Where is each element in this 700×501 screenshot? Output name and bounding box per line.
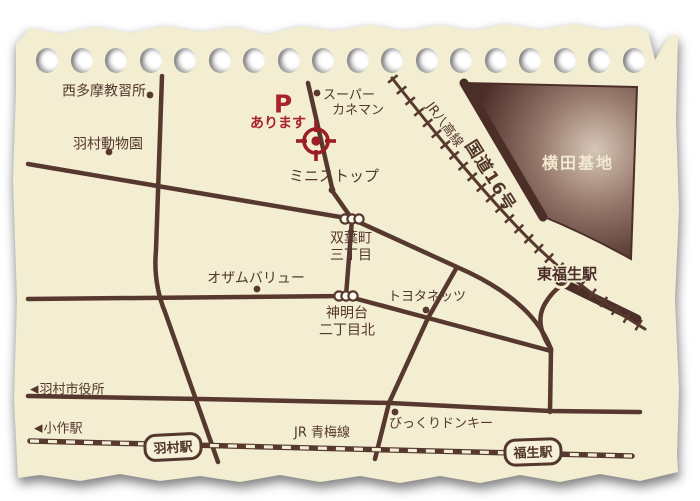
label-2chome-kita: 二丁目北 <box>319 322 375 339</box>
label-parking-p: P <box>274 89 292 119</box>
label-bikkuri-donkey: びっくりドンキー <box>389 416 493 431</box>
route16-road-lower <box>559 281 637 319</box>
road-upper-horizontal <box>28 164 551 349</box>
traffic-light-icon <box>334 291 357 300</box>
label-shinmeidai-2chome-kita: 神明台 二丁目北 <box>319 305 375 338</box>
poi-dot-kaneman <box>314 90 321 97</box>
road-station-curve <box>540 285 562 349</box>
label-higashi-fussa-station: 東福生駅 <box>537 266 597 284</box>
poi-dot-toyota <box>423 307 430 314</box>
left-arrow-icon: ◀ <box>34 421 42 434</box>
label-ministop: ミニストップ <box>289 168 379 186</box>
map: 西多摩教習所 羽村動物園 P あります スーパー カネマン ミニストップ 双葉町… <box>0 0 700 501</box>
label-hamura-zoo: 羽村動物園 <box>73 137 143 154</box>
label-super-kaneman: スーパー カネマン <box>323 88 384 118</box>
label-nishitama-driving-school: 西多摩教習所 <box>62 84 146 101</box>
road-junction-vertical <box>550 349 551 412</box>
label-futabacho-3chome: 双葉町 三丁目 <box>330 230 372 263</box>
fussa-station-pill: 福生駅 <box>503 437 563 467</box>
label-super-kaneman-line2: カネマン <box>332 103 384 118</box>
left-arrow-icon: ◀ <box>30 382 38 395</box>
label-shinmeidai: 神明台 <box>319 305 375 322</box>
label-parking-available: あります <box>250 116 306 133</box>
poi-dot-nishitama <box>147 92 154 99</box>
label-hamura-cityhall-text: 羽村市役所 <box>39 382 104 397</box>
label-ozaku-station-text: 小作駅 <box>43 421 82 436</box>
label-ozam-value: オザムバリュー <box>207 271 305 288</box>
label-toyota-netz: トヨタネッツ <box>388 289 466 304</box>
road-middle-horizontal <box>28 296 551 351</box>
label-hamura-cityhall: ◀羽村市役所 <box>30 382 104 397</box>
road-left-diagonal <box>155 76 218 462</box>
traffic-light-icon <box>340 214 363 223</box>
poi-dot-ministop <box>329 187 336 194</box>
poi-dot-bikkuri <box>392 409 399 416</box>
label-jr-ome-line: JR 青梅線 <box>294 425 350 440</box>
label-ozaku-station: ◀小作駅 <box>34 421 82 436</box>
hamura-station-pill: 羽村駅 <box>143 431 203 462</box>
label-futabacho: 双葉町 <box>330 230 372 247</box>
label-yokota-base: 横田基地 <box>542 155 614 174</box>
label-3chome: 三丁目 <box>330 247 372 264</box>
label-super-kaneman-line1: スーパー <box>323 88 384 103</box>
